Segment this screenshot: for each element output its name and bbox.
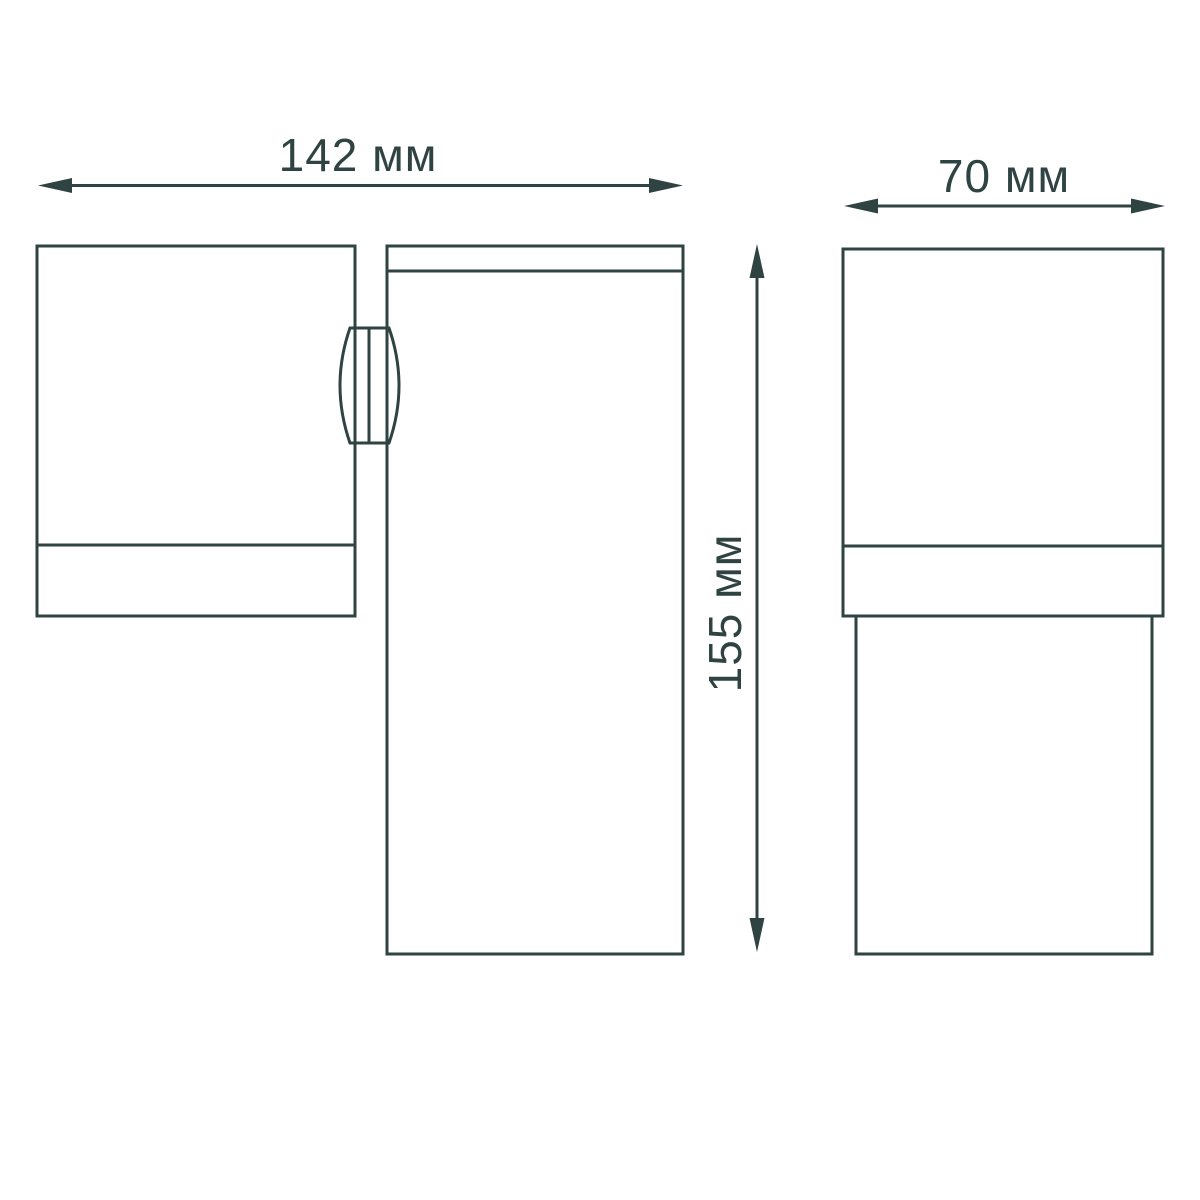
arrowhead-up-icon xyxy=(750,244,765,278)
front-tube-outline xyxy=(856,616,1152,954)
arrowhead-left-icon xyxy=(844,199,878,214)
width-dimension: 142 мм xyxy=(38,129,683,193)
technical-drawing: 142 мм 70 мм 155 мм xyxy=(0,0,1200,1200)
dimension-diagram-page: 142 мм 70 мм 155 мм xyxy=(0,0,1200,1200)
mount-column-outline xyxy=(387,246,683,954)
depth-dimension: 70 мм xyxy=(844,150,1165,214)
lamp-head-outline xyxy=(37,246,355,616)
arrowhead-right-icon xyxy=(1131,199,1165,214)
front-view xyxy=(843,249,1163,954)
depth-dimension-label: 70 мм xyxy=(938,150,1070,202)
arrowhead-left-icon xyxy=(38,178,72,193)
height-dimension: 155 мм xyxy=(699,244,765,952)
width-dimension-label: 142 мм xyxy=(279,129,438,181)
height-dimension-label: 155 мм xyxy=(699,534,751,693)
arrowhead-right-icon xyxy=(649,178,683,193)
arrowhead-down-icon xyxy=(750,918,765,952)
swivel-joint xyxy=(340,328,399,443)
front-mount-outline xyxy=(843,249,1163,616)
side-view xyxy=(37,246,683,954)
